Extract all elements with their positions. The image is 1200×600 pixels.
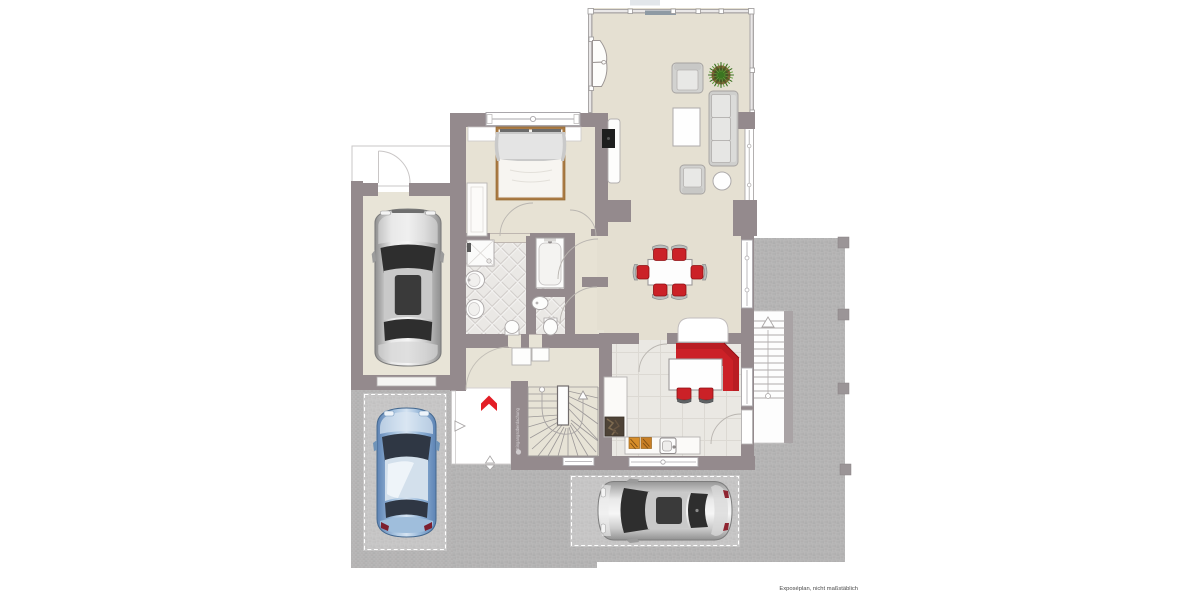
svg-text:Exposéplan, nicht maßstäblich: Exposéplan, nicht maßstäblich xyxy=(779,586,858,592)
svg-text:Eingangsüberdachung: Eingangsüberdachung xyxy=(515,407,520,450)
